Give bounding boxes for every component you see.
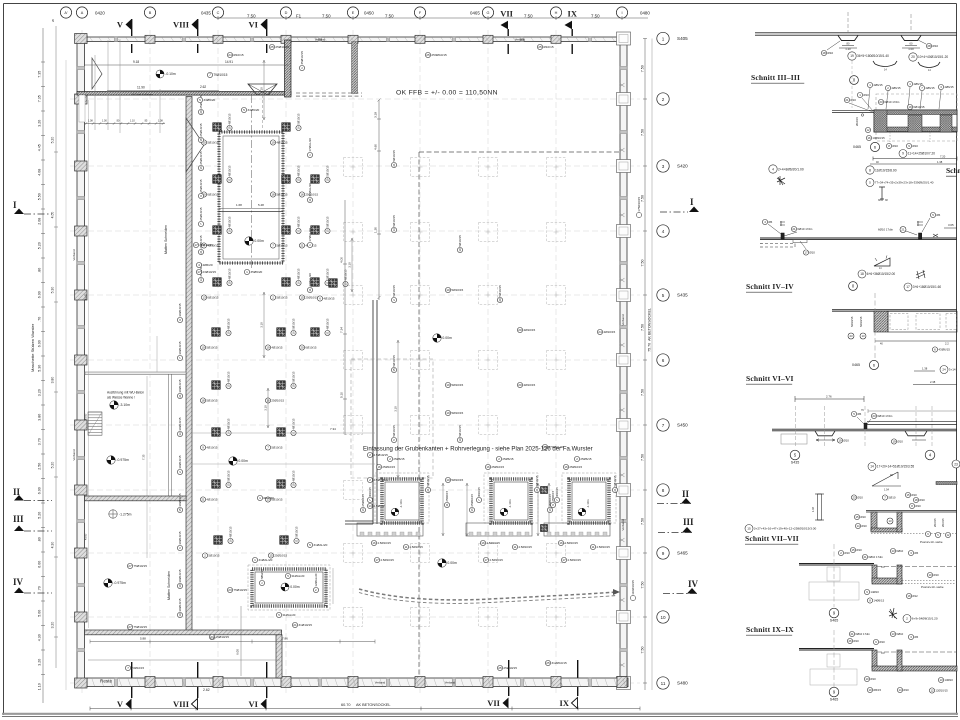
svg-text:7: 7 xyxy=(662,423,665,428)
svg-text:4.30: 4.30 xyxy=(51,542,55,549)
svg-text:10: 10 xyxy=(446,288,450,292)
svg-text:Verband: Verband xyxy=(621,314,625,326)
svg-text:19: 19 xyxy=(458,438,462,442)
svg-text:27: 27 xyxy=(128,564,132,568)
svg-text:21: 21 xyxy=(901,228,905,232)
svg-text:25: 25 xyxy=(270,45,274,49)
svg-text:S435: S435 xyxy=(791,461,799,465)
svg-text:Schnitt IV–IV: Schnitt IV–IV xyxy=(746,282,794,291)
svg-text:Ø6: Ø6 xyxy=(914,551,918,555)
svg-text:6Ø10/15: 6Ø10/15 xyxy=(207,193,218,197)
svg-text:7: 7 xyxy=(209,73,211,77)
svg-text:ØAL/20: ØAL/20 xyxy=(263,496,274,500)
svg-text:Ø10/15: Ø10/15 xyxy=(941,518,945,527)
svg-text:3.20: 3.20 xyxy=(51,622,55,629)
svg-text:E: E xyxy=(352,11,355,15)
svg-text:10: 10 xyxy=(446,478,450,482)
svg-text:7.50: 7.50 xyxy=(641,518,645,525)
svg-text:3.20: 3.20 xyxy=(38,659,42,666)
svg-text:14.91: 14.91 xyxy=(225,60,233,64)
svg-text:I: I xyxy=(621,11,622,15)
svg-text:S465: S465 xyxy=(830,698,838,702)
svg-text:6Ø10/15: 6Ø10/15 xyxy=(305,346,316,350)
svg-text:7.86: 7.86 xyxy=(282,637,288,641)
svg-text:28: 28 xyxy=(927,44,931,48)
svg-text:Ø10: Ø10 xyxy=(857,496,863,500)
svg-text:312Ø10/15: 312Ø10/15 xyxy=(551,661,567,665)
svg-text:31ØAL/20: 31ØAL/20 xyxy=(313,543,327,547)
svg-text:21: 21 xyxy=(845,98,849,102)
svg-text:4Ø10/15: 4Ø10/15 xyxy=(227,318,231,329)
svg-text:4Ø10/15: 4Ø10/15 xyxy=(276,141,287,145)
svg-text:Reste: Reste xyxy=(100,679,112,684)
svg-text:14Ø6/15: 14Ø6/15 xyxy=(873,599,884,603)
svg-text:9.18: 9.18 xyxy=(133,60,139,64)
svg-text:1.38: 1.38 xyxy=(937,160,943,164)
svg-text:1.38: 1.38 xyxy=(922,367,928,371)
svg-text:11Ø10/15/8.00: 11Ø10/15/8.00 xyxy=(875,168,897,172)
svg-text:31ØAL/20: 31ØAL/20 xyxy=(291,574,304,578)
svg-text:2.62: 2.62 xyxy=(200,85,206,89)
svg-text:75Ø10/15: 75Ø10/15 xyxy=(133,625,147,629)
svg-text:6Ø10/15: 6Ø10/15 xyxy=(207,296,218,300)
svg-text:-0.975m: -0.975m xyxy=(116,458,129,462)
svg-text:Maschette Stützen Wurster: Maschette Stützen Wurster xyxy=(30,323,35,372)
svg-text:11: 11 xyxy=(513,545,516,549)
svg-text:1: 1 xyxy=(662,36,665,41)
svg-text:4: 4 xyxy=(198,263,200,267)
svg-text:21: 21 xyxy=(426,488,430,492)
svg-text:0.00m: 0.00m xyxy=(254,239,264,243)
svg-text:Ø10: Ø10 xyxy=(860,515,866,519)
svg-text:IX: IX xyxy=(568,9,578,19)
svg-text:Ø10: Ø10 xyxy=(903,688,909,692)
svg-text:5Ø10/15: 5Ø10/15 xyxy=(859,316,863,327)
svg-text:11: 11 xyxy=(591,545,594,549)
svg-text:Ø6/15: Ø6/15 xyxy=(873,688,881,692)
svg-text:4Ø10/15: 4Ø10/15 xyxy=(227,418,231,429)
svg-text:1.10: 1.10 xyxy=(130,120,135,123)
svg-text:25: 25 xyxy=(546,661,550,665)
svg-text:Ø10/15: Ø10/15 xyxy=(855,117,859,126)
svg-text:IV: IV xyxy=(13,577,24,587)
svg-text:25Ø10/15: 25Ø10/15 xyxy=(569,465,582,469)
svg-text:23Ø10/15: 23Ø10/15 xyxy=(199,243,213,247)
svg-text:15: 15 xyxy=(326,229,330,233)
svg-text:0465: 0465 xyxy=(852,363,860,367)
svg-text:16: 16 xyxy=(377,465,381,469)
svg-text:.70: .70 xyxy=(38,586,42,591)
svg-text:Ø10: Ø10 xyxy=(870,677,876,681)
svg-text:6.47: 6.47 xyxy=(210,637,216,641)
svg-text:24: 24 xyxy=(942,368,946,372)
svg-text:20: 20 xyxy=(498,298,502,302)
svg-text:5.20: 5.20 xyxy=(38,242,42,249)
svg-text:19: 19 xyxy=(228,281,232,285)
svg-text:13: 13 xyxy=(178,432,182,436)
svg-text:25: 25 xyxy=(498,666,502,670)
svg-text:4Ø10/15: 4Ø10/15 xyxy=(603,330,615,334)
svg-text:2: 2 xyxy=(906,617,908,621)
svg-text:10: 10 xyxy=(178,584,182,588)
svg-text:13: 13 xyxy=(891,549,895,553)
svg-text:14: 14 xyxy=(870,465,874,469)
svg-text:0.00m: 0.00m xyxy=(447,561,457,565)
svg-text:Schn: Schn xyxy=(946,166,960,175)
svg-text:4.5Ø10/15: 4.5Ø10/15 xyxy=(564,541,578,545)
svg-text:5Ø10: 5Ø10 xyxy=(888,496,895,500)
svg-text:10Ø10/15: 10Ø10/15 xyxy=(872,136,885,140)
svg-text:5: 5 xyxy=(243,108,245,112)
svg-text:4.5Ø10/15: 4.5Ø10/15 xyxy=(377,541,391,545)
svg-text:6.00: 6.00 xyxy=(38,487,42,494)
svg-text:4.00: 4.00 xyxy=(340,257,344,263)
svg-text:31ØAL/20: 31ØAL/20 xyxy=(258,558,272,562)
svg-text:21: 21 xyxy=(295,539,299,543)
svg-text:5Ø10/15: 5Ø10/15 xyxy=(392,285,396,297)
svg-text:Verband: Verband xyxy=(445,681,456,685)
svg-text:3.70: 3.70 xyxy=(38,438,42,445)
svg-text:4Ø10/15: 4Ø10/15 xyxy=(228,165,232,176)
svg-text:5Ø10/15: 5Ø10/15 xyxy=(227,470,231,481)
svg-text:15: 15 xyxy=(747,527,751,531)
svg-text:10: 10 xyxy=(868,688,872,692)
svg-text:12Ø10/15: 12Ø10/15 xyxy=(935,689,948,693)
svg-text:17ØAL/20: 17ØAL/20 xyxy=(308,273,312,287)
svg-text:5Ø10/15: 5Ø10/15 xyxy=(392,150,396,162)
svg-text:S450: S450 xyxy=(677,423,688,428)
svg-text:16: 16 xyxy=(229,539,233,543)
svg-text:16: 16 xyxy=(564,465,568,469)
svg-text:IX: IX xyxy=(560,698,570,708)
svg-text:5: 5 xyxy=(309,543,311,547)
svg-text:Verband: Verband xyxy=(72,249,76,261)
svg-text:20: 20 xyxy=(518,328,522,332)
svg-text:19: 19 xyxy=(228,126,232,130)
svg-text:Ø10: Ø10 xyxy=(879,640,885,644)
svg-text:43Ø6/15: 43Ø6/15 xyxy=(938,348,950,352)
svg-text:9: 9 xyxy=(902,152,904,156)
svg-text:2.50: 2.50 xyxy=(38,463,42,470)
svg-text:Ø10: Ø10 xyxy=(850,98,856,102)
svg-text:4Ø6/15: 4Ø6/15 xyxy=(873,83,883,87)
svg-text:II: II xyxy=(682,489,690,499)
svg-text:16: 16 xyxy=(548,508,552,512)
svg-text:11: 11 xyxy=(445,503,449,506)
svg-text:21: 21 xyxy=(228,178,232,182)
svg-text:1: 1 xyxy=(300,67,304,69)
svg-text:25Ø6/15: 25Ø6/15 xyxy=(393,457,404,461)
svg-text:Matten Schneiden: Matten Schneiden xyxy=(164,225,168,254)
svg-text:19: 19 xyxy=(892,440,896,444)
svg-text:19: 19 xyxy=(838,439,842,443)
svg-text:S420: S420 xyxy=(677,164,688,169)
svg-text:Ø6: Ø6 xyxy=(768,220,772,224)
svg-text:B: B xyxy=(149,11,152,15)
svg-text:77+34+74+35+2x39+23+18+339Ø6/2: 77+34+74+35+2x39+23+18+339Ø6/20/1.40 xyxy=(875,181,934,185)
svg-text:4: 4 xyxy=(772,167,774,171)
svg-text:7ØM/20: 7ØM/20 xyxy=(260,569,264,580)
svg-text:5.88: 5.88 xyxy=(140,637,146,641)
svg-text:5.20: 5.20 xyxy=(51,462,55,469)
svg-text:11: 11 xyxy=(308,198,312,201)
svg-text:21: 21 xyxy=(178,394,182,398)
svg-text:Ø10: Ø10 xyxy=(897,440,903,444)
svg-text:5Ø10/15: 5Ø10/15 xyxy=(498,285,502,297)
svg-text:45Ø10/15: 45Ø10/15 xyxy=(300,51,304,65)
svg-text:5Ø10/15: 5Ø10/15 xyxy=(613,475,617,486)
svg-text:3.10: 3.10 xyxy=(260,322,264,328)
svg-text:OK FFB = +/- 0.00 = 110,50NN: OK FFB = +/- 0.00 = 110,50NN xyxy=(396,90,498,97)
svg-text:6Ø10 17din: 6Ø10 17din xyxy=(878,228,893,232)
svg-text:15: 15 xyxy=(297,178,301,182)
svg-text:4Ø10/15: 4Ø10/15 xyxy=(228,113,232,124)
svg-text:7.35: 7.35 xyxy=(142,454,146,460)
svg-text:Ø10: Ø10 xyxy=(911,493,917,497)
svg-text:253Ø10/15: 253Ø10/15 xyxy=(431,53,447,57)
svg-text:3.80: 3.80 xyxy=(51,377,55,384)
svg-text:Schnitt VI–VI: Schnitt VI–VI xyxy=(746,374,794,383)
svg-text:16: 16 xyxy=(227,431,231,435)
svg-text:Pos12+13- siehe: Pos12+13- siehe xyxy=(920,540,943,544)
svg-text:25: 25 xyxy=(426,53,430,57)
svg-text:10+4+40Ø10/15/1.20: 10+4+40Ø10/15/1.20 xyxy=(918,55,948,59)
svg-text:8: 8 xyxy=(869,168,871,172)
svg-text:VIII: VIII xyxy=(173,20,190,30)
svg-text:15: 15 xyxy=(855,515,859,519)
svg-text:18: 18 xyxy=(860,272,864,276)
svg-text:16: 16 xyxy=(297,126,301,130)
svg-text:15: 15 xyxy=(300,296,304,300)
svg-text:31Ø10/15: 31Ø10/15 xyxy=(298,623,312,627)
svg-text:13: 13 xyxy=(888,519,892,523)
svg-text:20: 20 xyxy=(911,55,915,59)
svg-text:15: 15 xyxy=(269,554,273,558)
svg-text:20: 20 xyxy=(518,383,522,387)
svg-text:5Ø10/15: 5Ø10/15 xyxy=(206,346,217,350)
svg-text:21: 21 xyxy=(300,244,304,248)
svg-text:13Ø10: 13Ø10 xyxy=(944,678,953,682)
svg-text:25Ø6/15: 25Ø6/15 xyxy=(445,490,449,501)
svg-text:30Ø10/15: 30Ø10/15 xyxy=(178,531,182,545)
svg-text:4.08: 4.08 xyxy=(38,169,42,176)
svg-text:Schnitt VII–VII: Schnitt VII–VII xyxy=(745,534,799,543)
svg-text:1.68: 1.68 xyxy=(236,203,242,207)
svg-text:18: 18 xyxy=(199,138,203,142)
svg-text:34Ø6/20: 34Ø6/20 xyxy=(247,108,259,112)
svg-text:15Ø10/15: 15Ø10/15 xyxy=(215,635,229,639)
svg-text:23: 23 xyxy=(879,100,883,104)
svg-text:5.10: 5.10 xyxy=(340,392,344,398)
svg-text:18: 18 xyxy=(914,498,918,502)
svg-text:5Ø10/15: 5Ø10/15 xyxy=(276,244,287,248)
svg-text:30Ø10/15: 30Ø10/15 xyxy=(178,569,182,583)
svg-text:F1: F1 xyxy=(296,14,302,19)
svg-text:21: 21 xyxy=(292,431,296,435)
svg-text:4Ø10/15: 4Ø10/15 xyxy=(206,446,217,450)
svg-text:-3.10m: -3.10m xyxy=(119,403,130,407)
svg-text:15: 15 xyxy=(227,384,231,388)
svg-text:40x80: 40x80 xyxy=(86,413,88,420)
svg-text:4Ø10/15: 4Ø10/15 xyxy=(206,498,217,502)
svg-text:-1.10m: -1.10m xyxy=(586,499,590,508)
svg-text:1: 1 xyxy=(254,558,256,562)
svg-text:31ØAL/20: 31ØAL/20 xyxy=(282,613,295,617)
svg-text:VII: VII xyxy=(487,698,500,708)
svg-text:4: 4 xyxy=(662,229,665,234)
svg-text:13: 13 xyxy=(199,278,203,282)
svg-text:VIII: VIII xyxy=(173,699,190,709)
svg-text:18: 18 xyxy=(201,399,205,403)
svg-text:6Ø10/15: 6Ø10/15 xyxy=(913,105,924,109)
svg-text:13: 13 xyxy=(939,678,943,682)
svg-text:5.30: 5.30 xyxy=(38,365,42,372)
svg-text:6.00: 6.00 xyxy=(38,561,42,568)
svg-text:4.00: 4.00 xyxy=(51,212,55,219)
svg-text:25Ø10/15: 25Ø10/15 xyxy=(199,207,203,221)
svg-text:25Ø10/15: 25Ø10/15 xyxy=(548,494,552,507)
svg-text:7.50: 7.50 xyxy=(591,14,600,19)
svg-text:23: 23 xyxy=(849,334,853,338)
svg-text:3.10: 3.10 xyxy=(394,406,398,412)
svg-text:21: 21 xyxy=(850,632,854,636)
svg-text:.80: .80 xyxy=(38,537,42,542)
svg-text:18: 18 xyxy=(271,193,275,197)
svg-text:5Ø10/15: 5Ø10/15 xyxy=(276,193,287,197)
svg-text:6Ø10: 6Ø10 xyxy=(896,549,903,553)
svg-text:2: 2 xyxy=(369,453,371,457)
svg-text:10: 10 xyxy=(458,248,462,252)
svg-text:8: 8 xyxy=(662,488,665,493)
svg-text:7.50: 7.50 xyxy=(247,14,256,19)
svg-text:16: 16 xyxy=(228,229,232,233)
svg-text:21: 21 xyxy=(326,331,330,335)
svg-text:10: 10 xyxy=(928,573,932,577)
svg-text:20: 20 xyxy=(300,346,304,350)
svg-text:S465: S465 xyxy=(677,551,688,556)
svg-text:12: 12 xyxy=(867,128,870,132)
svg-text:175Ø10/15: 175Ø10/15 xyxy=(637,197,641,212)
svg-text:7.50: 7.50 xyxy=(641,65,645,72)
svg-text:4Ø6/15: 4Ø6/15 xyxy=(925,86,935,90)
svg-text:I: I xyxy=(690,197,694,207)
svg-text:25Ø10/15: 25Ø10/15 xyxy=(271,399,284,403)
svg-text:16: 16 xyxy=(292,331,296,335)
svg-text:2+4+8Ø6/20/1.00: 2+4+8Ø6/20/1.00 xyxy=(778,167,804,171)
svg-text:4.5Ø10/15: 4.5Ø10/15 xyxy=(567,558,581,562)
svg-text:3+27+43+16+47+19+40+12+258Ø10/: 3+27+43+16+47+19+40+12+258Ø10/15/3.00 xyxy=(754,527,817,531)
svg-text:C3: C3 xyxy=(881,651,885,655)
svg-text:0.00m: 0.00m xyxy=(442,336,452,340)
svg-text:.80: .80 xyxy=(38,268,42,273)
svg-text:4Ø10/15: 4Ø10/15 xyxy=(297,216,301,227)
svg-text:25Ø10/15: 25Ø10/15 xyxy=(199,179,203,193)
svg-text:23Ø10/15: 23Ø10/15 xyxy=(202,270,216,274)
svg-text:30Ø10/15: 30Ø10/15 xyxy=(178,303,182,317)
svg-text:16: 16 xyxy=(867,136,871,140)
svg-text:6Ø10: 6Ø10 xyxy=(896,632,903,636)
svg-text:30Ø10/15: 30Ø10/15 xyxy=(178,493,182,507)
svg-text:-1.10m: -1.10m xyxy=(399,499,403,508)
svg-text:5Ø10/15: 5Ø10/15 xyxy=(535,475,539,486)
svg-text:0465: 0465 xyxy=(853,145,861,149)
svg-text:14: 14 xyxy=(856,524,860,528)
svg-text:11: 11 xyxy=(661,681,666,686)
svg-text:C3: C3 xyxy=(881,565,885,569)
svg-text:Ø10: Ø10 xyxy=(856,548,862,552)
svg-text:4Ø6/20: 4Ø6/20 xyxy=(202,263,212,267)
svg-text:6.00: 6.00 xyxy=(236,649,240,655)
svg-text:4Ø6/15: 4Ø6/15 xyxy=(944,85,954,89)
svg-text:16: 16 xyxy=(470,508,474,512)
svg-text:17ØAL/20: 17ØAL/20 xyxy=(308,183,312,197)
svg-text:25Ø10/15: 25Ø10/15 xyxy=(382,465,395,469)
svg-text:Ø10: Ø10 xyxy=(863,93,869,97)
svg-text:6+9+54Ø8/15/1.20: 6+9+54Ø8/15/1.20 xyxy=(912,617,938,621)
svg-text:16: 16 xyxy=(300,193,304,197)
svg-text:34Ø6/20: 34Ø6/20 xyxy=(203,98,215,102)
svg-text:Schnitt III–III: Schnitt III–III xyxy=(751,73,800,82)
svg-text:11+14+25Ø10/7.20: 11+14+25Ø10/7.20 xyxy=(908,152,935,156)
svg-text:23: 23 xyxy=(872,414,876,418)
svg-text:3.80: 3.80 xyxy=(38,414,42,421)
svg-text:16: 16 xyxy=(486,465,490,469)
svg-text:1.30: 1.30 xyxy=(374,227,378,233)
svg-text:16: 16 xyxy=(907,594,911,598)
svg-text:4.5Ø10/15: 4.5Ø10/15 xyxy=(489,558,503,562)
svg-text:4.60: 4.60 xyxy=(374,144,378,150)
svg-text:IV: IV xyxy=(688,579,699,589)
svg-text:21: 21 xyxy=(863,555,867,559)
svg-text:Ø10: Ø10 xyxy=(912,144,918,148)
svg-text:2.2: 2.2 xyxy=(945,342,949,346)
svg-text:3.20: 3.20 xyxy=(38,120,42,127)
svg-text:H: H xyxy=(555,11,558,15)
svg-text:10: 10 xyxy=(201,346,205,350)
svg-text:Ø6: Ø6 xyxy=(936,213,940,217)
svg-text:6Ø10 17din: 6Ø10 17din xyxy=(877,414,892,418)
svg-text:Ø10/15: Ø10/15 xyxy=(233,53,243,57)
svg-text:Verband: Verband xyxy=(621,519,625,531)
svg-text:7.50: 7.50 xyxy=(641,582,645,589)
svg-text:Matten Schneiden: Matten Schneiden xyxy=(167,571,171,600)
svg-text:0.00m: 0.00m xyxy=(290,585,300,589)
svg-text:Ø10: Ø10 xyxy=(843,439,849,443)
svg-text:G: G xyxy=(487,11,490,15)
svg-text:AK BETONSOCKEL: AK BETONSOCKEL xyxy=(356,703,391,707)
svg-text:14Ø10: 14Ø10 xyxy=(870,590,879,594)
svg-text:A': A' xyxy=(64,11,68,15)
svg-text:4Ø10/15: 4Ø10/15 xyxy=(227,371,231,382)
svg-text:5Ø10/15: 5Ø10/15 xyxy=(271,446,282,450)
svg-text:20: 20 xyxy=(199,110,203,114)
svg-text:Verband: Verband xyxy=(515,38,526,42)
svg-text:1.10: 1.10 xyxy=(38,683,42,690)
svg-text:5Ø10/15: 5Ø10/15 xyxy=(295,526,299,537)
svg-text:16: 16 xyxy=(361,508,365,512)
svg-text:0.00m: 0.00m xyxy=(238,459,248,463)
svg-text:0435: 0435 xyxy=(201,11,211,16)
svg-text:Ø10/15: Ø10/15 xyxy=(477,487,481,497)
svg-text:19: 19 xyxy=(850,54,854,58)
svg-text:5Ø10/15: 5Ø10/15 xyxy=(206,399,217,403)
svg-text:26: 26 xyxy=(848,639,852,643)
svg-text:1.20: 1.20 xyxy=(845,47,851,51)
svg-text:Ø10: Ø10 xyxy=(932,44,938,48)
svg-text:4Ø10/15: 4Ø10/15 xyxy=(292,470,296,481)
svg-text:Ø10: Ø10 xyxy=(809,251,815,255)
svg-text:21: 21 xyxy=(792,227,796,231)
